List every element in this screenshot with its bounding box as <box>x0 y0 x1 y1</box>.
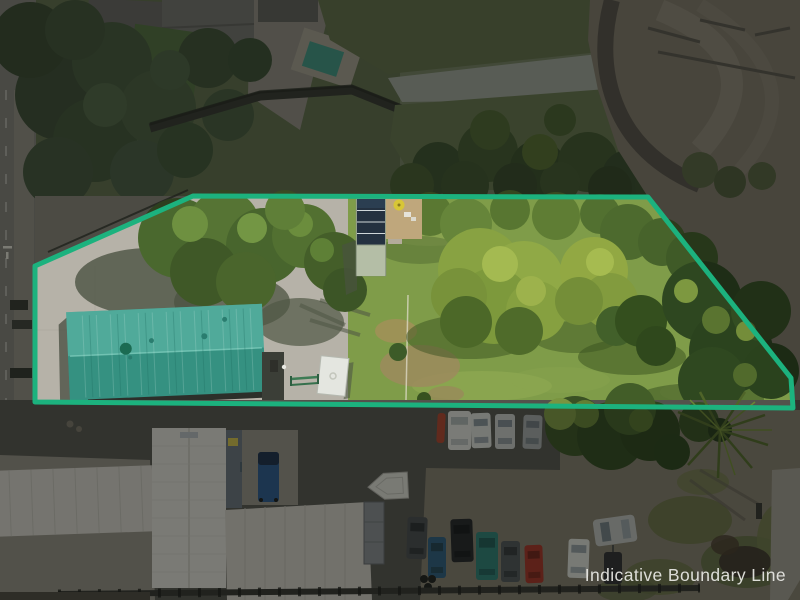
main-building <box>56 304 266 407</box>
watermark-label: Indicative Boundary Line <box>585 565 786 585</box>
deck <box>386 197 422 244</box>
white-shed <box>317 356 354 400</box>
solar-building-lower-roof <box>357 245 385 276</box>
outdoor-furniture <box>404 212 411 217</box>
aerial-photo: Indicative Boundary Line <box>0 0 800 600</box>
person <box>282 365 286 369</box>
aerial-photo-canvas: Indicative Boundary Line <box>0 0 800 600</box>
loading-dock <box>262 352 284 400</box>
